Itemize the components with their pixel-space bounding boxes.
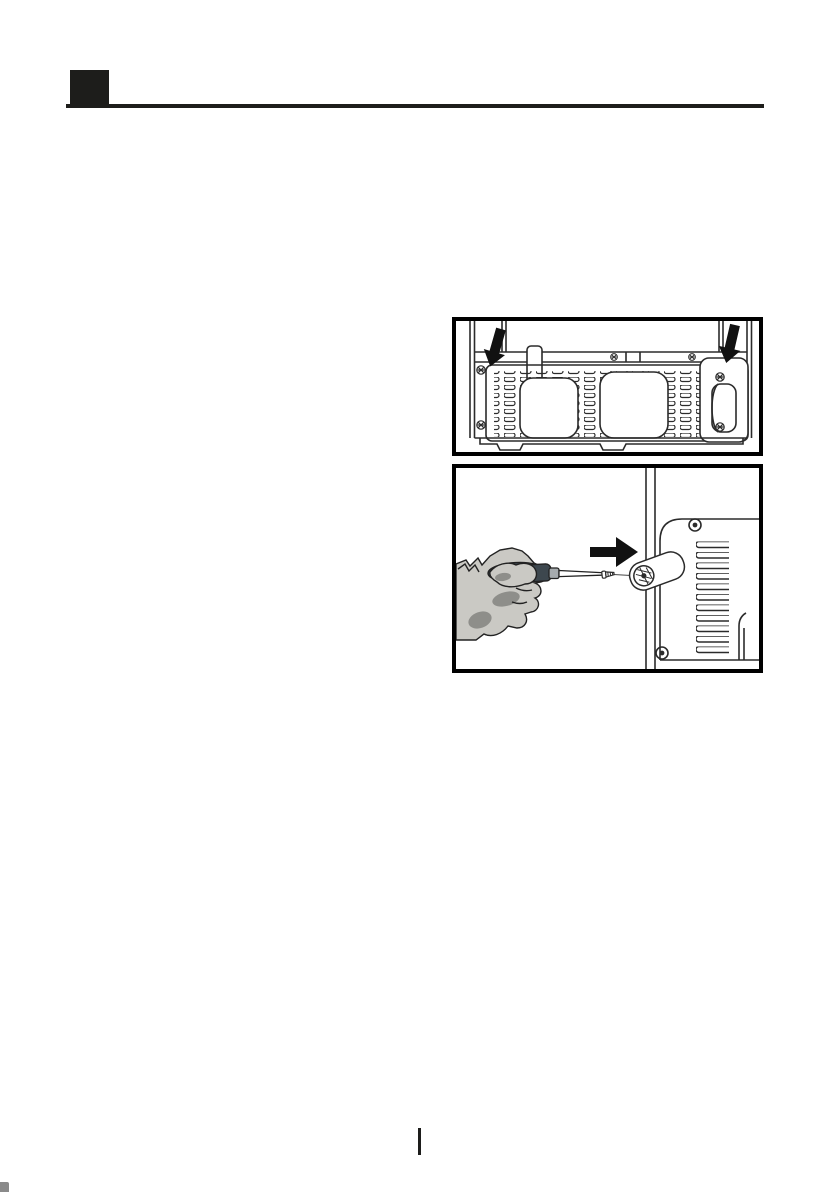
panel-opening — [520, 378, 578, 438]
screw-cover-cap — [626, 548, 688, 593]
header-rule — [66, 104, 764, 108]
hand-with-screwdriver — [456, 548, 551, 640]
manual-page — [0, 0, 840, 1192]
chapter-marker-square-icon — [70, 70, 109, 107]
right-arrow-icon — [590, 537, 638, 567]
screw-icon — [689, 519, 701, 531]
figure-rear-panel-screws — [452, 317, 763, 456]
vent-grille — [683, 538, 729, 654]
figure-side-screw-screwdriver — [452, 464, 763, 673]
screw-icon — [656, 647, 668, 659]
rear-panel-illustration — [456, 321, 759, 452]
panel-opening — [600, 372, 668, 438]
page-number-divider — [418, 1128, 421, 1155]
appliance-rear-outline — [470, 321, 752, 450]
screwdriver-illustration — [456, 468, 759, 669]
screw-icon — [602, 570, 615, 578]
print-artifact-mark — [0, 1182, 9, 1192]
screwdriver-icon — [549, 568, 605, 579]
